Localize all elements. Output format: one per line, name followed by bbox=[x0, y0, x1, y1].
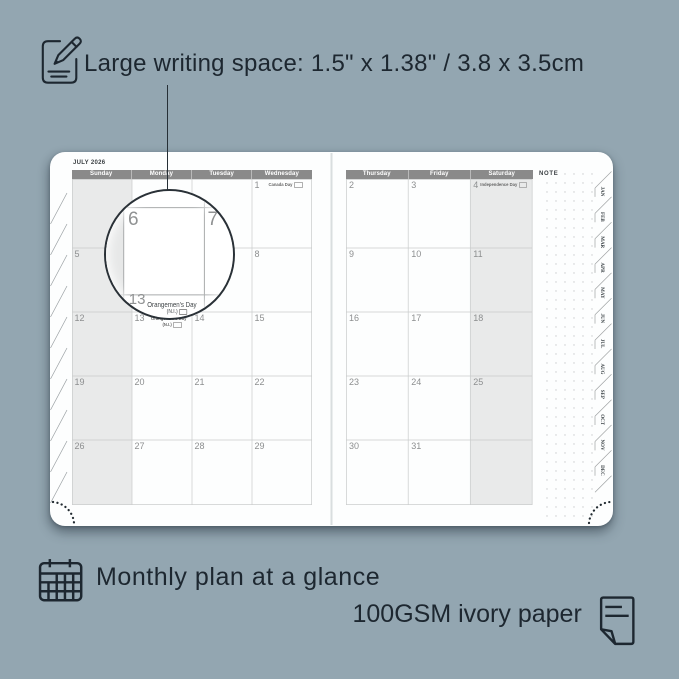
svg-text:APR: APR bbox=[599, 262, 604, 273]
svg-text:FEB: FEB bbox=[599, 212, 604, 222]
svg-text:MAR: MAR bbox=[599, 236, 604, 248]
svg-text:DEC: DEC bbox=[599, 465, 604, 476]
svg-text:MAY: MAY bbox=[599, 287, 604, 299]
svg-text:JUL: JUL bbox=[599, 339, 604, 349]
svg-text:AUG: AUG bbox=[599, 363, 604, 374]
svg-text:SEP: SEP bbox=[599, 390, 604, 399]
svg-text:OCT: OCT bbox=[599, 414, 604, 426]
svg-text:JUN: JUN bbox=[599, 313, 604, 323]
svg-text:NOV: NOV bbox=[599, 439, 604, 451]
svg-text:JAN: JAN bbox=[599, 187, 604, 197]
